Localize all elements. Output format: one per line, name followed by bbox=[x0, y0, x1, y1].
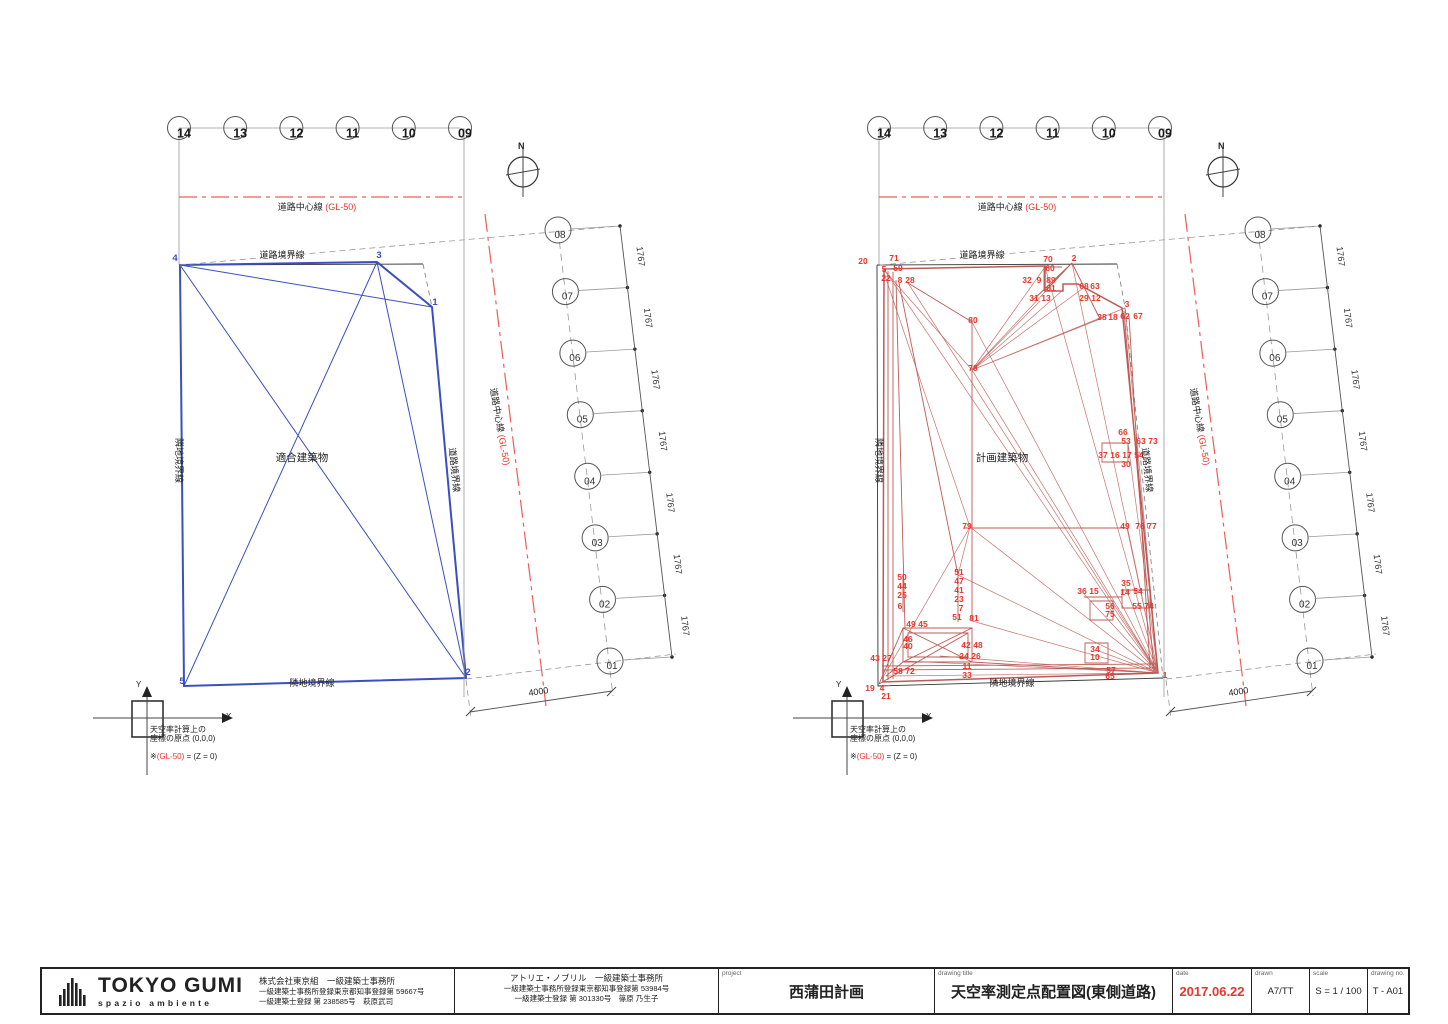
left-grid-bubble-label: 14 bbox=[177, 127, 191, 141]
right-measure-circle-label: 06 bbox=[1269, 353, 1281, 364]
origin-note-post: = (Z = 0) bbox=[884, 752, 917, 761]
right-measure-connector bbox=[1277, 288, 1327, 291]
project-cell: project 西蒲田計画 bbox=[718, 969, 934, 1013]
right-dim-1767-label: 1767 bbox=[1342, 307, 1354, 328]
left-grid-bubble-label: 10 bbox=[402, 127, 416, 141]
planned-point-label: 61 bbox=[1046, 283, 1056, 293]
right-grid-bubble-label: 10 bbox=[1102, 127, 1116, 141]
planned-point-label: 28 bbox=[905, 275, 915, 285]
left-road-boundary-top-label: 道路境界線 bbox=[242, 250, 322, 260]
date-cell: date 2017.06.22 bbox=[1172, 969, 1251, 1013]
drawn-cell: drawn A7/TT bbox=[1251, 969, 1309, 1013]
left-north-label: N bbox=[518, 141, 525, 151]
origin-note-post: = (Z = 0) bbox=[184, 752, 217, 761]
planned-point-label: 37 bbox=[1098, 450, 1108, 460]
right-origin-caption: 天空率計算上の座標の原点 (0,0,0) bbox=[850, 725, 915, 743]
planned-building-rays-78 bbox=[884, 263, 1125, 370]
right-north-label: N bbox=[1218, 141, 1225, 151]
left-dim-1767-label: 1767 bbox=[672, 554, 684, 575]
right-adjacent-boundary-left-label: 隣地境界線 bbox=[874, 438, 884, 483]
road-center-gl: (GL-50) bbox=[1025, 202, 1056, 212]
right-measure-connector bbox=[1315, 595, 1365, 598]
right-building-label: 計画建築物 bbox=[962, 452, 1042, 464]
right-axis-x-label: X bbox=[926, 712, 931, 721]
planned-point-label: 22 bbox=[881, 273, 891, 283]
logo-cell: TOKYO GUMI spazio ambiente 株式会社東京組 一級建築士… bbox=[42, 969, 454, 1013]
planned-point-label: 31 bbox=[1029, 293, 1039, 303]
date-tag: date bbox=[1176, 970, 1189, 977]
origin-note-pre: ※ bbox=[150, 752, 157, 761]
right-axis-y-label: Y bbox=[836, 680, 841, 689]
planned-point-label: 10 bbox=[1090, 652, 1100, 662]
planned-point-label: 74 bbox=[1144, 601, 1154, 611]
planned-point-label: 49 bbox=[1120, 521, 1130, 531]
planned-point-label: 6 bbox=[898, 601, 903, 611]
right-measure-circle-label: 07 bbox=[1262, 292, 1274, 303]
planned-point-label: 49 bbox=[906, 619, 916, 629]
left-dim-1767-label: 1767 bbox=[679, 615, 691, 636]
left-measure-connector bbox=[570, 226, 620, 229]
left-dim-1767-label: 1767 bbox=[664, 492, 676, 513]
left-building-label: 適合建築物 bbox=[262, 452, 342, 464]
left-grid-bubble-label: 11 bbox=[346, 127, 359, 141]
left-measure-circle-label: 05 bbox=[577, 415, 589, 426]
road-center-gl: (GL-50) bbox=[325, 202, 356, 212]
right-site-top-edge bbox=[877, 264, 1117, 265]
right-measure-connector bbox=[1270, 226, 1320, 229]
planned-point-label: 1 bbox=[1163, 670, 1168, 680]
logo-text-stack: TOKYO GUMI spazio ambiente bbox=[98, 975, 243, 1008]
planned-point-label: 65 bbox=[1105, 671, 1115, 681]
left-dim-1767-label: 1767 bbox=[642, 307, 654, 328]
left-measure-connector bbox=[585, 349, 635, 352]
planned-point-label: 19 bbox=[865, 683, 875, 693]
planned-point-label: 38 bbox=[1097, 312, 1107, 322]
logo-name: TOKYO GUMI bbox=[98, 975, 243, 996]
left-road-centerline-slant bbox=[485, 214, 546, 706]
right-measure-circle-label: 04 bbox=[1284, 476, 1296, 487]
title-block: TOKYO GUMI spazio ambiente 株式会社東京組 一級建築士… bbox=[40, 967, 1410, 1015]
planned-point-label: 48 bbox=[973, 640, 983, 650]
cad-canvas: 1413121110090807060504030201176717671767… bbox=[0, 0, 1448, 1024]
left-measure-circle-label: 01 bbox=[606, 661, 618, 672]
left-grid-bubble-label: 13 bbox=[233, 127, 247, 141]
planned-point-label: 58 bbox=[893, 666, 903, 676]
road-center-text: 道路中心線 bbox=[978, 202, 1023, 212]
conforming-vertex-label: 4 bbox=[172, 253, 178, 264]
left-conforming-building bbox=[180, 262, 466, 686]
left-dim-1767-label: 1767 bbox=[649, 369, 661, 390]
drawing-no-tag: drawing no. bbox=[1371, 970, 1405, 977]
left-measure-circle-label: 03 bbox=[592, 538, 604, 549]
right-grid-bubble-label: 11 bbox=[1046, 127, 1059, 141]
left-measure-connector bbox=[577, 288, 627, 291]
planned-point-label: 29 bbox=[1079, 293, 1089, 303]
tokyo-gumi-logo-icon bbox=[58, 975, 88, 1007]
planned-point-label: 3 bbox=[1125, 299, 1130, 309]
left-measure-connector bbox=[615, 595, 665, 598]
drawing-title-tag: drawing title bbox=[938, 970, 973, 977]
left-measure-circle-label: 08 bbox=[554, 230, 566, 241]
planned-point-label: 72 bbox=[905, 666, 915, 676]
origin-note-gl: (GL-50) bbox=[157, 752, 185, 761]
planned-point-label: 21 bbox=[881, 691, 891, 701]
right-origin-y-arrow bbox=[842, 686, 852, 697]
project-tag: project bbox=[722, 970, 742, 977]
planned-point-label: 33 bbox=[962, 670, 972, 680]
right-road-boundary-top-label: 道路境界線 bbox=[942, 250, 1022, 260]
left-measure-circle-label: 07 bbox=[562, 292, 574, 303]
drawing-no-cell: drawing no. T - A01 bbox=[1367, 969, 1408, 1013]
conforming-vertex-label: 2 bbox=[465, 667, 470, 678]
office2-line3: 一級建築士登録 第 301330号 篠原 乃生子 bbox=[455, 994, 718, 1004]
planned-point-label: 2 bbox=[1072, 253, 1077, 263]
planned-point-label: 60 bbox=[1045, 263, 1055, 273]
scale-cell: scale S = 1 / 100 bbox=[1309, 969, 1367, 1013]
right-measure-connector bbox=[1307, 534, 1357, 537]
right-measure-circle-label: 05 bbox=[1277, 415, 1289, 426]
office1-line3: 一級建築士登録 第 238585号 萩原武司 bbox=[259, 997, 424, 1007]
planned-point-label: 78 bbox=[968, 363, 978, 373]
planned-point-label: 59 bbox=[893, 263, 903, 273]
left-road-center-label: 道路中心線 (GL-50) bbox=[237, 202, 397, 212]
planned-point-label: 12 bbox=[1091, 293, 1101, 303]
planned-point-label: 13 bbox=[1041, 293, 1051, 303]
right-measure-circle-label: 03 bbox=[1292, 538, 1304, 549]
left-dim-1767-label: 1767 bbox=[657, 431, 669, 452]
planned-point-label: 81 bbox=[969, 613, 979, 623]
scale-tag: scale bbox=[1313, 970, 1328, 977]
left-measure-circle-label: 02 bbox=[599, 599, 611, 610]
right-measure-circle-label: 08 bbox=[1254, 230, 1266, 241]
left-axis-y-label: Y bbox=[136, 680, 141, 689]
planned-point-label: 62 bbox=[1120, 311, 1130, 321]
right-road-centerline-slant bbox=[1185, 214, 1246, 706]
right-measure-circle-label: 02 bbox=[1299, 599, 1311, 610]
left-adjacent-boundary-left-label: 隣地境界線 bbox=[174, 438, 184, 483]
left-grid-bubble-label: 12 bbox=[289, 127, 303, 141]
conforming-building-diagonals bbox=[180, 262, 466, 686]
right-grid-bubble-label: 14 bbox=[877, 127, 891, 141]
drawn-tag: drawn bbox=[1255, 970, 1273, 977]
left-measure-circle-label: 06 bbox=[569, 353, 581, 364]
left-measure-connector bbox=[607, 534, 657, 537]
road-center-text: 道路中心線 bbox=[278, 202, 323, 212]
right-grid-bubble-label: 09 bbox=[1158, 127, 1172, 141]
planned-point-label: 63 bbox=[1136, 436, 1146, 446]
right-dim-1767-label: 1767 bbox=[1364, 492, 1376, 513]
origin-note-gl: (GL-50) bbox=[857, 752, 885, 761]
planned-point-label: 9 bbox=[1037, 275, 1042, 285]
office1-line2: 一級建築士事務所登録東京都知事登録第 59667号 bbox=[259, 987, 424, 997]
planned-point-label: 76 bbox=[1135, 521, 1145, 531]
planned-point-label: 42 bbox=[961, 640, 971, 650]
right-dim-1767-label: 1767 bbox=[1379, 615, 1391, 636]
planned-point-label: 25 bbox=[897, 590, 907, 600]
office1-line1: 株式会社東京組 一級建築士事務所 bbox=[259, 976, 424, 987]
planned-point-label: 24 bbox=[959, 651, 969, 661]
planned-point-label: 63 bbox=[1090, 281, 1100, 291]
planned-point-label: 26 bbox=[971, 651, 981, 661]
right-measure-connector bbox=[1300, 472, 1350, 475]
planned-point-label: 27 bbox=[882, 653, 892, 663]
origin-note-pre: ※ bbox=[850, 752, 857, 761]
drawing-sheet: 1413121110090807060504030201176717671767… bbox=[0, 0, 1448, 1024]
planned-point-label: 43 bbox=[870, 653, 880, 663]
planned-point-label: 67 bbox=[1133, 311, 1143, 321]
planned-point-label: 53 bbox=[1121, 436, 1131, 446]
planned-point-label: 79 bbox=[962, 521, 972, 531]
planned-point-label: 36 bbox=[1077, 586, 1087, 596]
right-grid-bubble-label: 12 bbox=[989, 127, 1003, 141]
planned-point-label: 73 bbox=[1148, 436, 1158, 446]
planned-point-label: 71 bbox=[889, 253, 899, 263]
left-axis-x-label: X bbox=[226, 712, 231, 721]
project-name: 西蒲田計画 bbox=[719, 969, 934, 1013]
origin-line1: 天空率計算上の bbox=[850, 725, 906, 734]
logo-subtitle: spazio ambiente bbox=[98, 998, 243, 1008]
origin-line2: 座標の原点 (0,0,0) bbox=[150, 734, 215, 743]
left-measure-connector bbox=[600, 472, 650, 475]
left-measure-connector bbox=[592, 411, 642, 414]
planned-point-label: 14 bbox=[1120, 587, 1130, 597]
right-guide-dash-bottom bbox=[1166, 654, 1376, 679]
right-dim-1767-label: 1767 bbox=[1372, 554, 1384, 575]
office1-info: 株式会社東京組 一級建築士事務所 一級建築士事務所登録東京都知事登録第 5966… bbox=[259, 976, 424, 1007]
conforming-vertex-label: 3 bbox=[376, 250, 381, 261]
left-measure-circle-label: 04 bbox=[584, 476, 596, 487]
planned-point-label: 45 bbox=[918, 619, 928, 629]
planned-point-label: 16 bbox=[1110, 450, 1120, 460]
planned-point-label: 68 bbox=[1079, 281, 1089, 291]
left-dim-1767-label: 1767 bbox=[635, 246, 647, 267]
planned-point-label: 51 bbox=[952, 612, 962, 622]
origin-line2: 座標の原点 (0,0,0) bbox=[850, 734, 915, 743]
left-origin-y-arrow bbox=[142, 686, 152, 697]
left-origin-note: ※(GL-50) = (Z = 0) bbox=[150, 752, 217, 761]
planned-point-label: 40 bbox=[903, 641, 913, 651]
conforming-building-outline bbox=[180, 262, 466, 686]
planned-point-label: 15 bbox=[1089, 586, 1099, 596]
planned-point-label: 80 bbox=[968, 315, 978, 325]
office2-line1: アトリエ・ノブリル 一級建築士事務所 bbox=[455, 973, 718, 984]
planned-point-label: 77 bbox=[1147, 521, 1157, 531]
right-measure-circle-label: 01 bbox=[1306, 661, 1318, 672]
left-origin-caption: 天空率計算上の座標の原点 (0,0,0) bbox=[150, 725, 215, 743]
right-measure-connector bbox=[1292, 411, 1342, 414]
right-origin-note: ※(GL-50) = (Z = 0) bbox=[850, 752, 917, 761]
right-measure-connector bbox=[1285, 349, 1335, 352]
planned-point-label: 75 bbox=[1105, 609, 1115, 619]
planned-building-rays-br bbox=[884, 263, 1158, 676]
planned-point-label: 54 bbox=[1133, 586, 1143, 596]
office2-line2: 一級建築士事務所登録東京都知事登録第 53984号 bbox=[455, 984, 718, 994]
planned-point-label: 8 bbox=[898, 275, 903, 285]
planned-point-label: 18 bbox=[1108, 312, 1118, 322]
right-adjacent-boundary-bottom-label: 隣地境界線 bbox=[972, 678, 1052, 688]
planned-point-label: 32 bbox=[1022, 275, 1032, 285]
left-adjacent-boundary-bottom-label: 隣地境界線 bbox=[272, 678, 352, 688]
left-guide-dash-bottom bbox=[466, 654, 676, 679]
conforming-vertex-label: 1 bbox=[432, 297, 438, 308]
right-dim-1767-label: 1767 bbox=[1357, 431, 1369, 452]
conforming-vertex-label: 5 bbox=[179, 676, 185, 687]
right-grid-bubble-label: 13 bbox=[933, 127, 947, 141]
right-dim-1767-label: 1767 bbox=[1335, 246, 1347, 267]
planned-point-label: 55 bbox=[1132, 601, 1142, 611]
office2-cell: アトリエ・ノブリル 一級建築士事務所 一級建築士事務所登録東京都知事登録第 53… bbox=[454, 969, 718, 1013]
right-road-center-label: 道路中心線 (GL-50) bbox=[937, 202, 1097, 212]
planned-point-label: 30 bbox=[1121, 459, 1131, 469]
drawing-title-cell: drawing title 天空率測定点配置図(東側道路) bbox=[934, 969, 1172, 1013]
right-dim-1767-label: 1767 bbox=[1349, 369, 1361, 390]
planned-point-label: 20 bbox=[858, 256, 868, 266]
origin-line1: 天空率計算上の bbox=[150, 725, 206, 734]
left-grid-bubble-label: 09 bbox=[458, 127, 472, 141]
